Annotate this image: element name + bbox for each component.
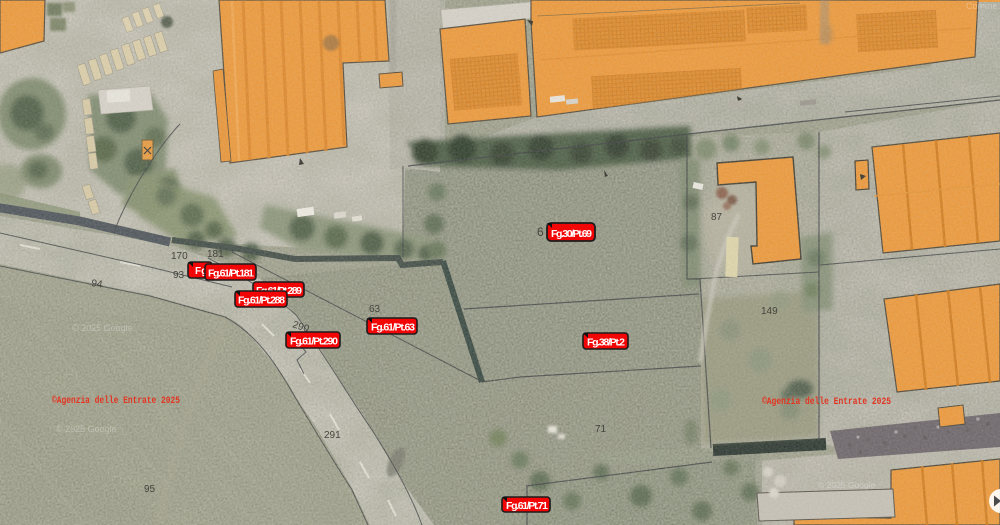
svg-text:©Agenzia delle Entrate 2025: ©Agenzia delle Entrate 2025	[52, 395, 180, 407]
svg-text:94: 94	[91, 278, 104, 291]
svg-text:Fg.61/Pt.63: Fg.61/Pt.63	[371, 322, 415, 334]
svg-text:Fg.61/Pt.288: Fg.61/Pt.288	[238, 295, 285, 307]
svg-text:Comme: Comme	[966, 1, 998, 11]
svg-text:Fg.30/Pt.69: Fg.30/Pt.69	[551, 228, 592, 240]
svg-text:Fg.61/Pt.71: Fg.61/Pt.71	[506, 500, 548, 512]
svg-text:Fg.61/Pt.290: Fg.61/Pt.290	[290, 336, 338, 348]
svg-text:95: 95	[144, 484, 156, 495]
svg-text:© 2025 Google: © 2025 Google	[72, 323, 133, 333]
svg-text:170: 170	[171, 251, 188, 262]
svg-text:291: 291	[324, 430, 341, 441]
svg-text:93: 93	[173, 270, 185, 281]
svg-text:Fg.38/Pt.2: Fg.38/Pt.2	[587, 337, 625, 349]
svg-text:87: 87	[711, 212, 723, 223]
svg-text:181: 181	[207, 249, 224, 260]
svg-text:©Agenzia delle Entrate 2025: ©Agenzia delle Entrate 2025	[762, 396, 891, 408]
svg-text:149: 149	[761, 306, 778, 317]
svg-text:Fg.61/Pt.181: Fg.61/Pt.181	[208, 268, 254, 280]
svg-text:© 2025 Google: © 2025 Google	[56, 424, 117, 434]
svg-text:© 2025 Google: © 2025 Google	[818, 480, 876, 490]
svg-text:63: 63	[369, 304, 381, 315]
svg-text:6: 6	[537, 225, 544, 239]
svg-text:71: 71	[595, 424, 607, 435]
